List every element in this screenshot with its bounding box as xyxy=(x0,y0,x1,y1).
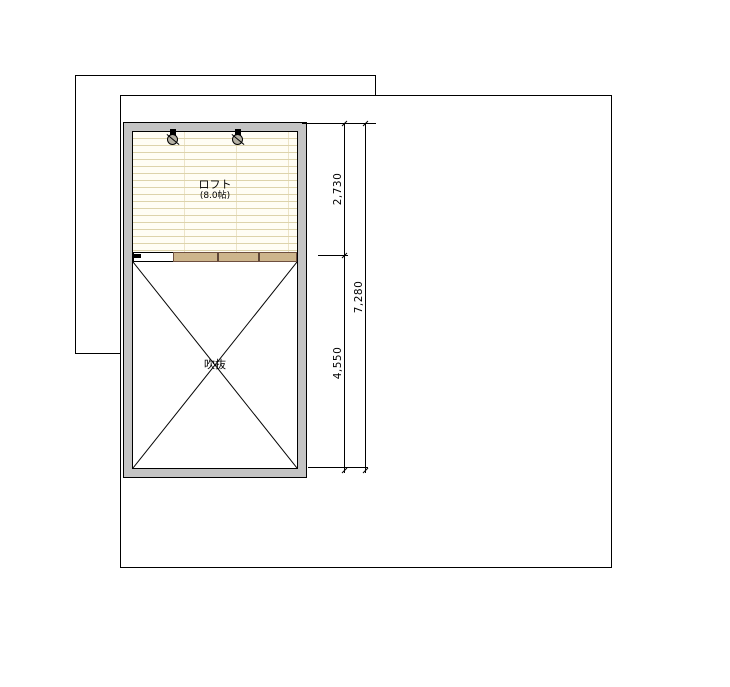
railing-divider xyxy=(217,253,219,261)
loft-area-label: (8.0帖) xyxy=(133,191,297,201)
dimension-label-loft: 2,730 xyxy=(332,154,344,224)
ceiling-light-icon xyxy=(230,129,246,149)
dimension-label-total: 7,280 xyxy=(353,262,365,332)
ceiling-light-icon xyxy=(165,129,181,149)
dimension-line-segments xyxy=(344,123,345,473)
loft-edge-post xyxy=(133,254,141,258)
dimension-line-total xyxy=(365,123,366,473)
loft-railing xyxy=(173,252,297,262)
dimension-extension-bottom xyxy=(308,467,368,468)
lower-floor-outline-bottom xyxy=(75,353,123,354)
lower-floor-outline-top xyxy=(75,75,376,76)
floor-plan-canvas: ロフト (8.0帖) 吹抜 2,730 4,550 7,280 xyxy=(0,0,730,687)
loft-label: ロフト xyxy=(133,179,297,191)
dimension-label-void: 4,550 xyxy=(332,328,344,398)
void-label: 吹抜 xyxy=(133,359,297,371)
lower-floor-outline-left xyxy=(75,75,76,354)
railing-divider xyxy=(258,253,260,261)
